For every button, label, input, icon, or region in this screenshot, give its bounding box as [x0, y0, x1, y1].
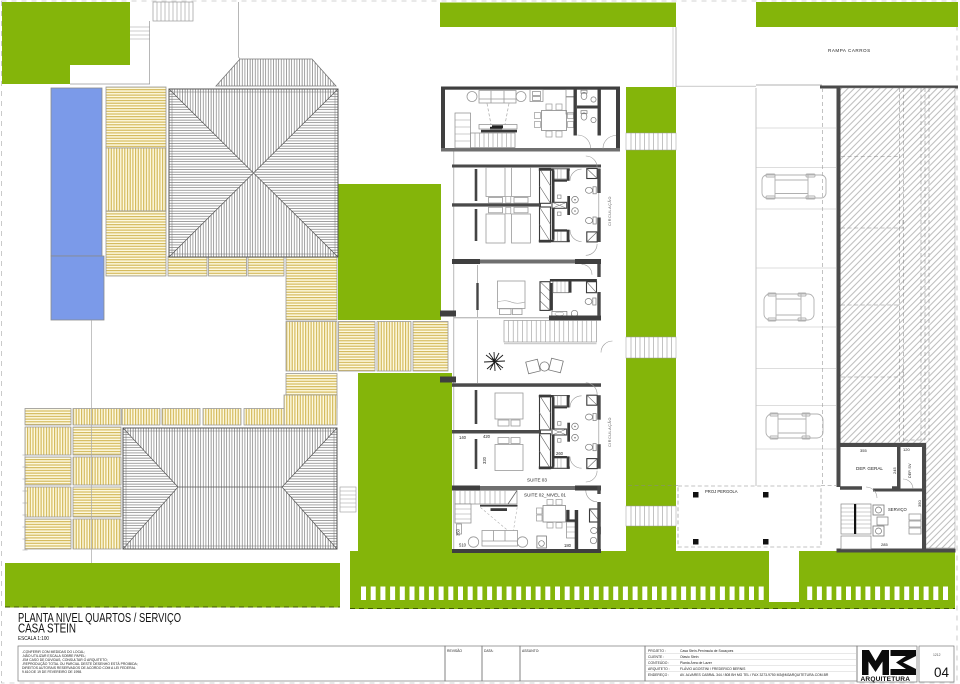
svg-text:CIRCULAÇÃO: CIRCULAÇÃO [607, 196, 612, 226]
svg-text:350: 350 [917, 500, 922, 507]
svg-text:ASSUNTO:: ASSUNTO: [522, 649, 539, 653]
svg-text:ESCALA 1:100: ESCALA 1:100 [18, 636, 49, 642]
svg-text:DEP. GERAL: DEP. GERAL [856, 466, 883, 471]
svg-text:CONTEÚDO :: CONTEÚDO : [648, 660, 669, 665]
svg-text:140: 140 [459, 435, 467, 440]
svg-text:ENDEREÇO :: ENDEREÇO : [648, 673, 669, 677]
svg-text:120: 120 [903, 447, 910, 452]
svg-text:320: 320 [482, 456, 487, 464]
svg-text:CLIENTE :: CLIENTE : [648, 655, 664, 659]
svg-text:420: 420 [483, 434, 491, 439]
svg-text:180: 180 [564, 543, 572, 548]
svg-text:9.610 DE 19 DE FEVEREIRO DE 19: 9.610 DE 19 DE FEVEREIRO DE 1998. [22, 670, 82, 674]
svg-text:Casa Stein-Península de Socaço: Casa Stein-Península de Socaçoes [680, 649, 734, 653]
svg-text:SERVIÇO: SERVIÇO [888, 507, 908, 512]
svg-text:245: 245 [892, 467, 897, 474]
svg-text:FLÁVIO AGOSTINI / FREDERICO BE: FLÁVIO AGOSTINI / FREDERICO BERNIS [680, 667, 746, 671]
svg-text:355: 355 [860, 448, 867, 453]
svg-text:ARQUITETURA: ARQUITETURA [861, 676, 911, 683]
svg-text:SUITE 02_NIVEL 01: SUITE 02_NIVEL 01 [524, 493, 566, 498]
svg-text:ARQUITETO :: ARQUITETO : [648, 667, 670, 671]
svg-text:SUITE 03: SUITE 03 [527, 478, 547, 483]
svg-text:AV. ALVARES CABRAL 344 / 808 B: AV. ALVARES CABRAL 344 / 808 BH MG TEL /… [680, 673, 829, 677]
svg-text:350: 350 [456, 528, 461, 536]
svg-text:RAMPA CARROS: RAMPA CARROS [828, 48, 871, 53]
svg-text:510: 510 [459, 543, 467, 548]
svg-text:04: 04 [934, 665, 950, 680]
svg-text:1212: 1212 [933, 653, 941, 657]
svg-text:Otavio Stein: Otavio Stein [680, 655, 699, 659]
svg-text:CIRCULAÇÃO: CIRCULAÇÃO [607, 417, 612, 447]
svg-text:PROJ PERGOLA: PROJ PERGOLA [705, 489, 738, 494]
svg-text:CASA STEIN: CASA STEIN [18, 622, 76, 636]
svg-text:Planta Área de Lazer: Planta Área de Lazer [680, 661, 713, 665]
svg-text:260: 260 [556, 451, 564, 456]
svg-text:DATA:: DATA: [484, 649, 494, 653]
svg-text:PROJETO :: PROJETO : [648, 649, 666, 653]
svg-text:DEP. SV: DEP. SV [908, 463, 912, 478]
svg-text:285: 285 [881, 542, 888, 547]
svg-text:REVISÃO: REVISÃO [447, 648, 462, 653]
